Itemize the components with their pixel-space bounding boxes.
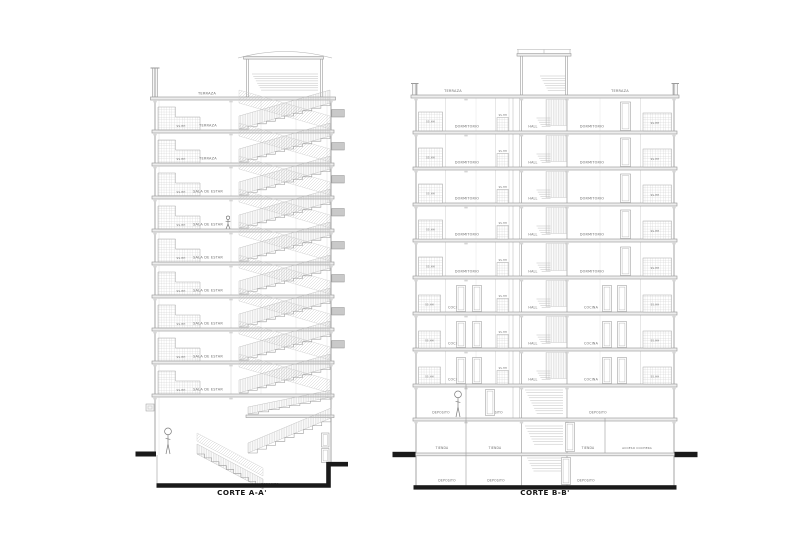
door-section <box>457 358 466 384</box>
floor-slab <box>413 418 677 421</box>
room-label: DORMITORIO <box>455 124 479 128</box>
floor-label: SALA DE ESTAR <box>193 255 223 259</box>
bathroom-hatch <box>497 299 509 313</box>
bulkhead-wall <box>521 56 523 95</box>
door-section <box>618 286 627 312</box>
column-stub <box>414 170 417 172</box>
column-stub <box>229 199 232 201</box>
figure-leg <box>228 224 230 229</box>
column-stub <box>464 98 467 100</box>
bathroom-hatch <box>497 263 509 277</box>
column-stub <box>229 133 232 135</box>
bulkhead-slab <box>244 57 324 60</box>
human-figure <box>455 391 462 417</box>
column-stub <box>672 206 675 208</box>
column-stub <box>229 265 232 267</box>
column-stub <box>565 387 568 389</box>
facade-window <box>332 176 345 184</box>
column-stub <box>153 364 156 366</box>
tiny-label: SS.HH <box>176 388 185 392</box>
column-stub <box>672 315 675 317</box>
tiny-label: SS.HH <box>499 114 507 117</box>
floor-slab <box>413 131 677 134</box>
floor-label: TERRAZA <box>198 156 217 160</box>
floor-slab <box>414 453 676 456</box>
column-stub <box>672 98 675 100</box>
floor-label: SALA DE ESTAR <box>193 222 223 226</box>
figure-leg <box>226 224 228 229</box>
column-stub <box>464 351 467 353</box>
tiny-label: SS.HH <box>176 289 185 293</box>
column-stub <box>464 242 467 244</box>
tiny-label: SS.HH <box>651 266 660 270</box>
door-section <box>618 322 627 348</box>
bulkhead-slab <box>517 54 571 57</box>
door-section <box>457 322 466 348</box>
tiny-label: SS.HH <box>426 265 435 269</box>
stair-railing-band <box>546 172 567 198</box>
column-stub <box>229 166 232 168</box>
floor-slab <box>413 348 677 351</box>
door-section <box>618 358 627 384</box>
floor-slab <box>413 167 677 170</box>
bathroom-hatch <box>497 335 509 349</box>
floor-slab <box>413 384 677 387</box>
column-stub <box>153 166 156 168</box>
tiny-label: SS.HH <box>651 339 660 343</box>
room-label: HALL <box>528 196 537 200</box>
grade-bar <box>393 452 416 457</box>
column-stub <box>414 206 417 208</box>
room-label: DORMITORIO <box>455 196 479 200</box>
column-stub <box>672 242 675 244</box>
column-stub <box>464 206 467 208</box>
tiny-label: SS.HH <box>176 322 185 326</box>
stair-railing-band <box>546 281 567 307</box>
column-stub <box>153 397 156 399</box>
column-stub <box>153 298 156 300</box>
floor-label: SALA DE ESTAR <box>193 387 223 391</box>
column-stub <box>672 387 675 389</box>
tiny-label: SS.HH <box>425 375 434 379</box>
bulkhead-wall <box>247 59 249 97</box>
human-figure <box>226 216 231 229</box>
door-section <box>473 286 482 312</box>
tiny-label: SS.HH <box>426 156 435 160</box>
floor-label: SALA DE ESTAR <box>193 321 223 325</box>
column-stub <box>464 170 467 172</box>
room-label: DEPOSITO <box>577 479 595 483</box>
column-stub <box>414 421 417 423</box>
floor-label: TERRAZA <box>610 89 629 93</box>
room-label: DORMITORIO <box>580 124 604 128</box>
tiny-label: SS.HH <box>176 256 185 260</box>
bathroom-hatch <box>497 118 509 132</box>
room-label: HALL <box>528 124 537 128</box>
tiny-label: SS.HH <box>499 186 507 189</box>
column-stub <box>520 421 523 423</box>
door-section <box>486 390 495 416</box>
room-label: DEPOSITO <box>487 479 505 483</box>
column-stub <box>153 331 156 333</box>
stair-flight <box>248 390 331 414</box>
human-figure <box>165 428 172 454</box>
column-stub <box>229 331 232 333</box>
tiny-label: SS.HH <box>651 229 660 233</box>
floor-slab <box>411 95 679 98</box>
bathroom-hatch <box>497 371 509 385</box>
figure-leg <box>456 407 458 417</box>
room-label: DORMITORIO <box>580 269 604 273</box>
door-section <box>562 458 571 485</box>
door-section <box>603 286 612 312</box>
tiny-label: SS.HH <box>499 367 507 370</box>
tiny-label: SS.HH <box>499 150 507 153</box>
tiny-label: SS.HH <box>651 121 660 125</box>
tiny-label: SS.HH <box>176 124 185 128</box>
caption-corte-aa: CORTE A-A' <box>217 488 267 497</box>
column-stub <box>520 242 523 244</box>
door-section <box>473 358 482 384</box>
figure-leg <box>166 444 168 454</box>
column-stub <box>672 170 675 172</box>
tiny-label: SS.HH <box>651 303 660 307</box>
column-stub <box>414 387 417 389</box>
room-label: TIENDA <box>581 446 595 450</box>
column-stub <box>414 279 417 281</box>
column-stub <box>520 279 523 281</box>
floor-label: SALA DE ESTAR <box>193 354 223 358</box>
room-label: DORMITORIO <box>580 160 604 164</box>
door-section <box>566 423 575 452</box>
door-section <box>603 322 612 348</box>
tiny-label: SS.HH <box>499 259 507 262</box>
room-label: HALL <box>528 269 537 273</box>
column-stub <box>153 199 156 201</box>
tiny-label: SS.HH <box>426 228 435 232</box>
facade-window <box>332 209 345 217</box>
room-label: ACCESO COCHERA <box>622 446 652 450</box>
room-label: COCINA <box>584 341 599 345</box>
grade-bar <box>136 452 157 457</box>
floor-slab <box>413 276 677 279</box>
corte-aa-section: TERRAZASS.HHTERRAZASS.HHTERRAZASS.HHSALA… <box>136 52 349 490</box>
column-stub <box>672 421 675 423</box>
column-stub <box>520 387 523 389</box>
stair-railing-band <box>546 136 567 162</box>
grade-bar <box>675 452 698 457</box>
floor-label: SALA DE ESTAR <box>193 189 223 193</box>
figure-leg <box>458 407 460 417</box>
door-section <box>457 286 466 312</box>
tiny-label: SS.HH <box>499 331 507 334</box>
tiny-label: SS.HH <box>176 355 185 359</box>
floor-slab <box>413 203 677 206</box>
column-stub <box>229 397 232 399</box>
room-label: TIENDA <box>435 446 449 450</box>
tiny-label: SS.HH <box>176 157 185 161</box>
room-label: HALL <box>528 305 537 309</box>
bulkhead-wall <box>566 56 568 95</box>
column-stub <box>153 232 156 234</box>
wall-fixture <box>146 404 154 411</box>
facade-window <box>332 308 345 316</box>
blueprint-page: TERRAZASS.HHTERRAZASS.HHTERRAZASS.HHSALA… <box>0 0 800 539</box>
room-label: TIENDA <box>488 446 502 450</box>
facade-window <box>332 275 345 283</box>
column-stub <box>414 351 417 353</box>
room-label: DORMITORIO <box>455 160 479 164</box>
floor-slab <box>413 312 677 315</box>
room-label: DORMITORIO <box>580 196 604 200</box>
tiny-label: SS.HH <box>499 295 507 298</box>
column-stub <box>520 351 523 353</box>
stair-railing-band <box>546 317 567 343</box>
tiny-label: SS.HH <box>176 223 185 227</box>
stair-railing-band <box>546 353 567 379</box>
column-stub <box>464 134 467 136</box>
room-label: DEPOSITO <box>438 479 456 483</box>
figure-leg <box>168 444 170 454</box>
bulkhead-wall <box>321 59 323 97</box>
column-stub <box>520 206 523 208</box>
room-label: DORMITORIO <box>580 232 604 236</box>
bathroom-hatch <box>497 226 509 240</box>
column-stub <box>153 100 156 102</box>
floor-label: TERRAZA <box>198 123 217 127</box>
column-stub <box>672 134 675 136</box>
room-label: HALL <box>528 160 537 164</box>
door-section <box>603 358 612 384</box>
column-stub <box>229 100 232 102</box>
room-label: HALL <box>528 377 537 381</box>
tiny-label: SS.HH <box>425 339 434 343</box>
door-section <box>473 322 482 348</box>
column-stub <box>414 242 417 244</box>
figure-head <box>226 216 229 219</box>
door-section <box>322 449 330 463</box>
column-stub <box>414 134 417 136</box>
floor-label: TERRAZA <box>443 89 462 93</box>
column-stub <box>672 351 675 353</box>
facade-window <box>332 143 345 151</box>
tiny-label: SS.HH <box>651 375 660 379</box>
bathroom-hatch <box>497 154 509 168</box>
room-label: DORMITORIO <box>455 269 479 273</box>
column-stub <box>414 98 417 100</box>
column-stub <box>229 232 232 234</box>
corte-bb-section: TERRAZATERRAZASS.HHDORMITORIOSS.HHHALLDO… <box>393 50 698 490</box>
column-stub <box>153 133 156 135</box>
tiny-label: SS.HH <box>426 192 435 196</box>
facade-window <box>332 341 345 349</box>
column-stub <box>520 170 523 172</box>
stair-railing-band <box>546 100 567 126</box>
floor-label: SALA DE ESTAR <box>193 288 223 292</box>
room-label: HALL <box>528 232 537 236</box>
figure-head <box>165 428 172 435</box>
room-label: DEPOSITO <box>589 411 607 415</box>
column-stub <box>520 134 523 136</box>
tiny-label: SS.HH <box>499 222 507 225</box>
column-stub <box>153 265 156 267</box>
room-label: COCINA <box>584 377 599 381</box>
facade-window <box>332 110 345 118</box>
room-label: HALL <box>528 341 537 345</box>
building-sections-drawing: TERRAZASS.HHTERRAZASS.HHTERRAZASS.HHSALA… <box>0 0 800 539</box>
figure-head <box>455 391 462 398</box>
floor-slab <box>413 239 677 242</box>
column-stub <box>229 298 232 300</box>
tiny-label: SS.HH <box>651 157 660 161</box>
stair-railing-band <box>546 208 567 234</box>
tiny-label: SS.HH <box>425 303 434 307</box>
stair-railing-band <box>546 244 567 271</box>
facade-window <box>332 242 345 250</box>
room-label: COCINA <box>584 305 599 309</box>
caption-corte-bb: CORTE B-B' <box>520 488 570 497</box>
column-stub <box>464 315 467 317</box>
tiny-label: SS.HH <box>176 190 185 194</box>
room-label: DEPOSITO <box>432 411 450 415</box>
floor-label: TERRAZA <box>197 92 216 96</box>
tiny-label: SS.HH <box>426 120 435 124</box>
figure-arms <box>226 221 231 222</box>
room-label: DORMITORIO <box>455 232 479 236</box>
tiny-label: SS.HH <box>651 193 660 197</box>
column-stub <box>229 364 232 366</box>
column-stub <box>520 98 523 100</box>
bathroom-hatch <box>497 190 509 204</box>
column-stub <box>520 315 523 317</box>
door-section <box>322 433 330 447</box>
column-stub <box>672 279 675 281</box>
column-stub <box>464 279 467 281</box>
column-stub <box>414 315 417 317</box>
